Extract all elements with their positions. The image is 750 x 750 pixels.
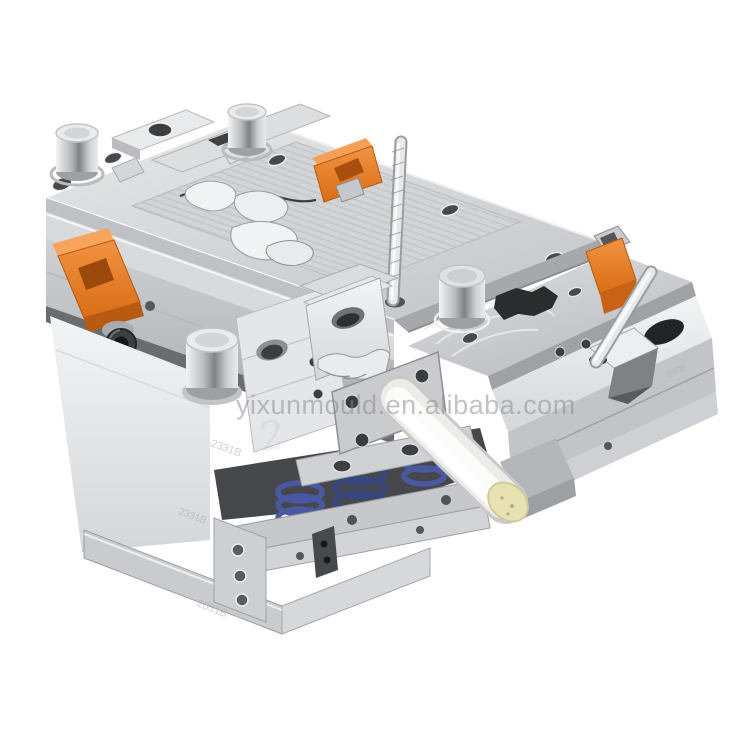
engraving-text: 2331B: [209, 438, 243, 460]
guide-pin: [182, 328, 242, 405]
guide-pin: [223, 104, 271, 160]
watermark-text: yixunmould.en.alibaba.com: [236, 390, 576, 420]
injection-mould-illustration: 2331B 2331B 2031B 030B 2 yixunmould.en.a…: [0, 0, 750, 750]
guide-pin: [51, 124, 103, 185]
guide-pin: [435, 265, 489, 332]
product-photo: 2331B 2331B 2031B 030B 2 yixunmould.en.a…: [0, 0, 750, 750]
